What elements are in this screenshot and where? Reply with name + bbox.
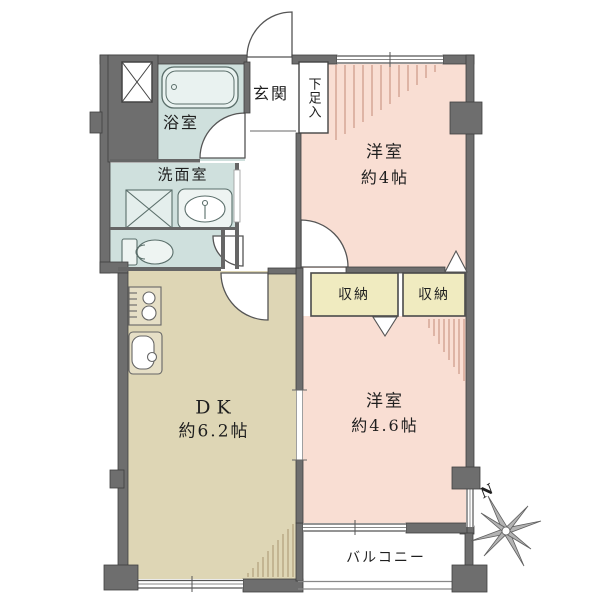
genkan-label: 玄関	[253, 86, 289, 102]
washer-pan-icon	[126, 190, 172, 228]
wall-bedroom1-bottom	[346, 267, 445, 273]
wall-bath-wash-divider	[110, 159, 200, 163]
stove-icon	[129, 287, 161, 325]
wall-dk-bedroom2-lower	[296, 460, 303, 523]
pillar-bottom-right	[452, 565, 487, 592]
bedroom1-size: 約4帖	[361, 170, 409, 186]
bedroom1-label: 洋室	[366, 145, 404, 162]
washroom-sliding-door	[234, 170, 240, 222]
wall-bathroom-right	[244, 62, 250, 113]
bedroom2-size: 約4.6帖	[351, 418, 418, 434]
toilet-icon	[122, 239, 173, 265]
entry-door-arc	[247, 12, 292, 57]
floorplan-canvas: 浴室 洗面室 玄関 下足入 洋室 約4帖 収納 収納 DK 約6.2帖 洋室 約…	[0, 0, 600, 600]
bathtub-icon	[162, 67, 238, 108]
shoe-box-label: 下足入	[307, 77, 320, 119]
wall-wash-toilet-divider	[110, 227, 236, 230]
washroom-label: 洗面室	[157, 168, 208, 183]
wall-balcony-divider	[296, 523, 303, 581]
pillar-right-mid	[452, 467, 480, 489]
pipe-space-box	[122, 62, 152, 102]
window-bedroom2-right	[466, 489, 474, 527]
closet2-label: 収納	[418, 288, 450, 302]
balcony-label: バルコニー	[346, 551, 426, 565]
wall-hall-right	[296, 133, 301, 268]
dk-label: DK	[195, 399, 236, 418]
wall-balcony-right	[465, 533, 473, 568]
dk-size: 約6.2帖	[178, 424, 249, 441]
bedroom2-label: 洋室	[366, 394, 404, 411]
kitchen-sink-icon	[129, 332, 162, 374]
wall-left-lower	[118, 273, 128, 568]
wall-hall-dk	[268, 268, 296, 274]
floorplan-drawing	[0, 0, 600, 600]
wall-dk-bedroom2-upper	[296, 268, 303, 390]
wall-toilet-bottom	[118, 267, 221, 271]
room-fills	[110, 62, 467, 581]
wall-bedroom2-bottom	[406, 523, 467, 533]
wall-toilet-right	[221, 229, 225, 269]
washroom-sink-icon	[178, 189, 232, 229]
closet1-label: 収納	[338, 288, 370, 302]
pillar-left-mid	[110, 470, 124, 488]
pillar-right-top	[450, 102, 482, 134]
wall-bottom-stub	[243, 579, 303, 592]
pillar-bottom-left	[104, 565, 138, 590]
compass-rose	[471, 496, 541, 566]
balcony-railing	[298, 582, 468, 590]
pillar-left-top	[90, 112, 102, 133]
compass-center	[502, 527, 510, 535]
bathroom-label: 浴室	[163, 115, 199, 131]
